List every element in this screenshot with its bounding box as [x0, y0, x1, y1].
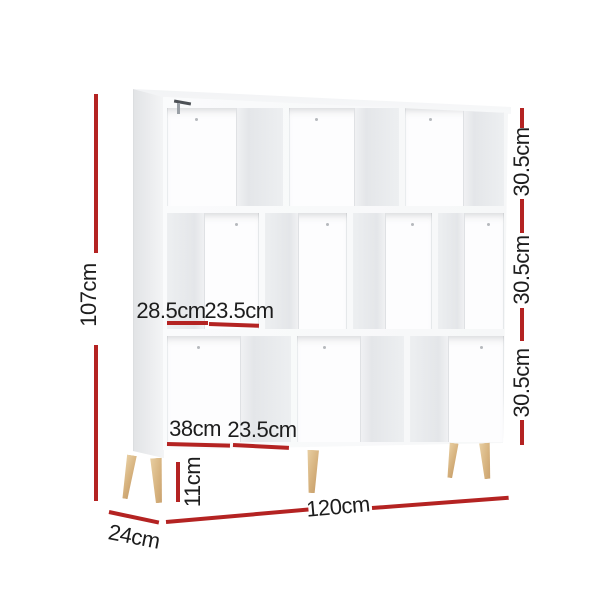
cube-cell — [265, 213, 347, 329]
row-height-dimension-line — [520, 108, 524, 128]
wooden-leg — [305, 450, 319, 493]
row-height-label-bottom: 30.5cm — [511, 348, 533, 417]
middle-cell-width-label-large: 28.5cm — [136, 300, 205, 322]
row-height-label-middle: 30.5cm — [511, 235, 533, 304]
wooden-leg — [445, 443, 459, 479]
bottom-cell-width-label-small: 23.5cm — [227, 419, 296, 441]
cube-cell — [353, 213, 432, 329]
cube-cell — [289, 108, 399, 206]
cube-cell — [410, 336, 504, 442]
cube-cell — [405, 108, 504, 206]
wooden-leg — [478, 443, 493, 480]
cube-cell — [297, 336, 404, 442]
shelf-left-side-panel — [133, 89, 164, 458]
bottom-cell-width-label-large: 38cm — [169, 418, 221, 440]
total-height-label: 107cm — [78, 263, 100, 327]
height-dimension-line — [94, 345, 98, 501]
wall-bracket-hardware — [177, 103, 180, 114]
cube-cell — [438, 213, 504, 329]
leg-height-label: 11cm — [182, 457, 204, 507]
product-dimension-diagram: 107cm 30.5cm 30.5cm 30.5cm 28.5cm 23.5cm… — [0, 0, 600, 600]
row-height-dimension-line — [520, 420, 524, 445]
cube-cell — [167, 108, 283, 206]
height-dimension-line — [94, 94, 98, 253]
total-width-label: 120cm — [305, 493, 370, 520]
middle-cell-width-label-small: 23.5cm — [204, 300, 273, 322]
row-height-dimension-line — [520, 199, 524, 233]
wooden-leg — [149, 458, 165, 504]
width-dimension-underline — [167, 321, 208, 325]
row-height-label-top: 30.5cm — [511, 127, 533, 196]
shelf-front-face — [163, 96, 508, 450]
wooden-leg — [120, 454, 138, 499]
row-height-dimension-line — [520, 308, 524, 341]
